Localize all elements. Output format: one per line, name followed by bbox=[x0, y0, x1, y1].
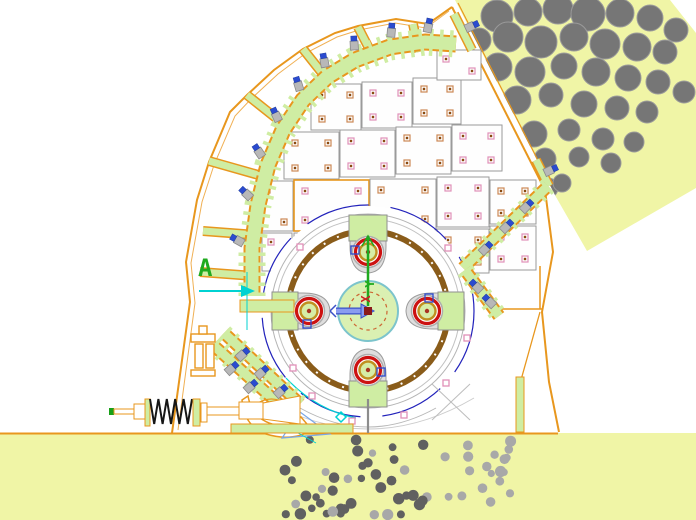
plate-bolt-dot bbox=[524, 236, 526, 238]
bracket-part bbox=[191, 334, 215, 342]
rock bbox=[514, 0, 542, 26]
fines-dot bbox=[397, 510, 405, 518]
rock bbox=[646, 70, 670, 94]
rock bbox=[515, 57, 545, 87]
rock bbox=[615, 65, 641, 91]
fines-dot bbox=[463, 452, 473, 462]
plate-bolt-dot bbox=[500, 190, 502, 192]
fines-dot bbox=[445, 493, 453, 501]
rock bbox=[664, 18, 688, 42]
fines-dot bbox=[478, 483, 488, 493]
bracket-part bbox=[191, 370, 215, 376]
fines-dot bbox=[280, 465, 291, 476]
fines-dot bbox=[370, 510, 379, 519]
fines-dot bbox=[346, 498, 357, 509]
fines-dot bbox=[282, 510, 290, 518]
fines-dot bbox=[301, 491, 312, 502]
plate-bolt-dot bbox=[462, 135, 464, 137]
hub-center-dot bbox=[364, 307, 372, 315]
pin-center bbox=[307, 309, 311, 313]
coil-spring bbox=[150, 399, 192, 424]
ring-bolt-marker bbox=[309, 393, 315, 399]
liner-bolt bbox=[292, 76, 304, 92]
fines-dot bbox=[352, 446, 363, 457]
fines-dot bbox=[457, 491, 466, 500]
ring-bolt-marker bbox=[401, 412, 407, 418]
spring-plate bbox=[145, 399, 150, 426]
rock bbox=[601, 153, 621, 173]
fines-dot bbox=[488, 470, 495, 477]
fines-dot bbox=[295, 508, 306, 519]
right-leg bbox=[516, 377, 524, 432]
plate-bolt-dot bbox=[447, 215, 449, 217]
ring-bolt-marker bbox=[297, 244, 303, 250]
fines-dot bbox=[375, 482, 386, 493]
plate-bolt-dot bbox=[423, 88, 425, 90]
fines-dot bbox=[389, 443, 397, 451]
plate-bolt-dot bbox=[524, 258, 526, 260]
rock bbox=[605, 96, 629, 120]
liner-bolt bbox=[350, 36, 359, 50]
axis-y-label: Y bbox=[363, 280, 377, 288]
section-marker-label: A bbox=[198, 254, 213, 282]
plate-bolt-dot bbox=[439, 162, 441, 164]
rock bbox=[590, 29, 620, 59]
liner-bolt bbox=[387, 23, 396, 38]
fines-dot bbox=[351, 435, 362, 446]
ring-bolt-marker bbox=[349, 418, 355, 424]
fines-dot bbox=[369, 449, 376, 456]
plate-bolt-dot bbox=[406, 137, 408, 139]
plate-bolt-dot bbox=[380, 189, 382, 191]
fines-dot bbox=[500, 469, 507, 476]
plate-bolt-dot bbox=[477, 187, 479, 189]
rock bbox=[569, 147, 589, 167]
plate-bolt-dot bbox=[304, 190, 306, 192]
plate-bolt-dot bbox=[477, 239, 479, 241]
fines-dot bbox=[463, 441, 473, 451]
bracket-part bbox=[199, 326, 207, 334]
plate-bolt-dot bbox=[449, 112, 451, 114]
fines-dot bbox=[318, 485, 326, 493]
pin-center bbox=[425, 309, 429, 313]
wear-plate bbox=[284, 132, 339, 179]
crusher-drawing-canvas: A Y X bbox=[0, 0, 696, 520]
fines-dot bbox=[291, 456, 302, 467]
plate-bolt-dot bbox=[447, 187, 449, 189]
right-wall bbox=[542, 190, 559, 432]
wear-plate bbox=[413, 78, 461, 124]
fines-dot bbox=[328, 486, 338, 496]
fines-dot bbox=[482, 462, 491, 471]
rock bbox=[624, 132, 644, 152]
plate-bolt-dot bbox=[349, 118, 351, 120]
fines-dot bbox=[344, 475, 353, 484]
fines-dot bbox=[390, 455, 399, 464]
plate-bolt-dot bbox=[490, 159, 492, 161]
plate-bolt-dot bbox=[439, 137, 441, 139]
wear-plate bbox=[340, 130, 395, 177]
plate-bolt-dot bbox=[350, 140, 352, 142]
plate-bolt-dot bbox=[304, 219, 306, 221]
generated-drawing bbox=[0, 0, 696, 520]
fines-dot bbox=[418, 496, 428, 506]
fines-dot bbox=[387, 476, 397, 486]
left-bracket bbox=[191, 326, 215, 376]
fines-dot bbox=[486, 497, 496, 507]
rock bbox=[571, 91, 597, 117]
plate-bolt-dot bbox=[350, 165, 352, 167]
fines-dot bbox=[418, 440, 428, 450]
plate-bolt-dot bbox=[283, 221, 285, 223]
axis-x-label: X bbox=[359, 295, 373, 303]
rock bbox=[673, 81, 695, 103]
plate-bolt-dot bbox=[449, 88, 451, 90]
plate-bolt-dot bbox=[294, 142, 296, 144]
plate-bolt-dot bbox=[462, 159, 464, 161]
fines-dot bbox=[358, 462, 366, 470]
bracket-part bbox=[195, 344, 203, 368]
fines-dot bbox=[288, 476, 296, 484]
bracket-part bbox=[206, 344, 214, 368]
ring-bolt-marker bbox=[443, 380, 449, 386]
fines-dot bbox=[328, 506, 339, 517]
fines-dot bbox=[495, 477, 504, 486]
plate-bolt-dot bbox=[447, 239, 449, 241]
plate-bolt-dot bbox=[424, 218, 426, 220]
plate-bolt-dot bbox=[424, 189, 426, 191]
rod-2 bbox=[207, 407, 239, 415]
plate-bolt-dot bbox=[423, 112, 425, 114]
plate-bolt-dot bbox=[372, 92, 374, 94]
fines-dot bbox=[329, 472, 340, 483]
plate-bolt-dot bbox=[321, 118, 323, 120]
rock bbox=[525, 26, 557, 58]
plate-bolt-dot bbox=[400, 92, 402, 94]
plate-bolt-dot bbox=[357, 190, 359, 192]
plate-bolt-dot bbox=[490, 135, 492, 137]
fines-dot bbox=[505, 445, 514, 454]
rock bbox=[592, 128, 614, 150]
ring-bolt-marker bbox=[464, 335, 470, 341]
plate-bolt-dot bbox=[383, 165, 385, 167]
rock bbox=[653, 40, 677, 64]
rock bbox=[636, 101, 658, 123]
spring-base bbox=[231, 424, 353, 433]
rock bbox=[606, 0, 634, 27]
rock bbox=[471, 81, 497, 107]
wear-plate bbox=[452, 125, 502, 171]
rock bbox=[558, 119, 580, 141]
plate-bolt-dot bbox=[383, 140, 385, 142]
fines-dot bbox=[506, 489, 514, 497]
plate-bolt-dot bbox=[327, 167, 329, 169]
fines-dot bbox=[400, 465, 410, 475]
plate-bolt-dot bbox=[270, 241, 272, 243]
fines-dot bbox=[402, 491, 410, 499]
spring-plate bbox=[193, 399, 200, 426]
plate-bolt-dot bbox=[471, 70, 473, 72]
fines-dot bbox=[503, 454, 511, 462]
fines-dot bbox=[308, 505, 316, 513]
fines-dot bbox=[441, 452, 450, 461]
ring-bolt-marker bbox=[445, 245, 451, 251]
rock bbox=[637, 5, 663, 31]
plate-bolt-dot bbox=[500, 212, 502, 214]
rod-collar bbox=[134, 404, 145, 419]
ring-bolt-marker bbox=[290, 365, 296, 371]
hammer-assembly bbox=[406, 292, 464, 330]
plate-bolt-dot bbox=[477, 215, 479, 217]
plate-bolt-dot bbox=[400, 116, 402, 118]
wear-plate bbox=[437, 50, 481, 80]
plate-bolt-dot bbox=[349, 94, 351, 96]
cylinder bbox=[239, 402, 263, 419]
fines-dot bbox=[322, 468, 330, 476]
fines-dot bbox=[291, 500, 300, 509]
plate-bolt-dot bbox=[372, 116, 374, 118]
rod bbox=[114, 409, 134, 414]
fines-dot bbox=[382, 509, 393, 520]
rock bbox=[623, 33, 651, 61]
fines-dot bbox=[465, 466, 474, 475]
rock bbox=[582, 58, 610, 86]
liner-end-block bbox=[240, 300, 294, 312]
fines-dot bbox=[316, 499, 325, 508]
plate-bolt-dot bbox=[445, 58, 447, 60]
rock bbox=[539, 83, 563, 107]
rod-tip bbox=[109, 408, 114, 415]
rock bbox=[551, 53, 577, 79]
plate-bolt-dot bbox=[524, 190, 526, 192]
rock bbox=[543, 0, 573, 24]
hammer-assembly bbox=[349, 349, 387, 407]
plate-bolt-dot bbox=[406, 162, 408, 164]
plate-bolt-dot bbox=[294, 167, 296, 169]
wear-plate bbox=[362, 82, 412, 128]
rock bbox=[560, 23, 588, 51]
fines-dot bbox=[358, 475, 365, 482]
plate-bolt-dot bbox=[327, 142, 329, 144]
wear-plate bbox=[396, 127, 451, 174]
drawing-scene: A Y X bbox=[0, 0, 696, 520]
rock bbox=[553, 174, 571, 192]
rock bbox=[493, 22, 523, 52]
fines-dot bbox=[371, 469, 382, 480]
spring-seat bbox=[201, 403, 207, 422]
pin-center bbox=[366, 368, 370, 372]
plate-bolt-dot bbox=[500, 258, 502, 260]
fines-dot bbox=[490, 451, 498, 459]
fines-dot bbox=[505, 436, 516, 447]
